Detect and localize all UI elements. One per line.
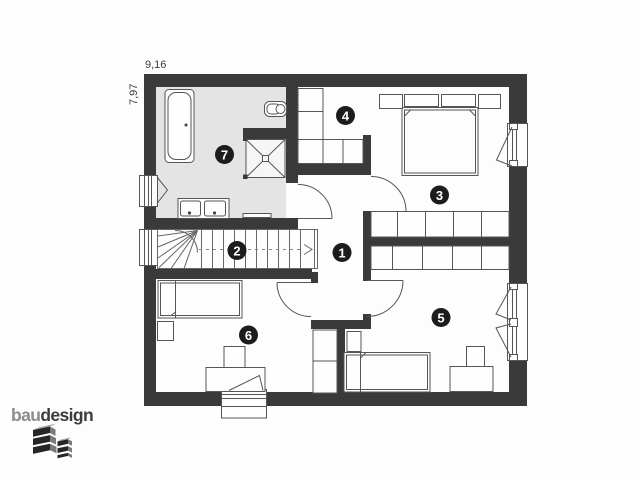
- svg-text:baudesign: baudesign: [11, 405, 93, 425]
- svg-text:2: 2: [233, 244, 240, 259]
- svg-text:6: 6: [245, 328, 252, 343]
- svg-text:4: 4: [342, 109, 350, 124]
- svg-text:1: 1: [338, 246, 345, 261]
- svg-text:3: 3: [436, 188, 443, 203]
- svg-text:5: 5: [437, 311, 444, 326]
- svg-text:7,97: 7,97: [128, 84, 140, 105]
- svg-text:7: 7: [221, 148, 228, 163]
- svg-text:9,16: 9,16: [145, 59, 166, 71]
